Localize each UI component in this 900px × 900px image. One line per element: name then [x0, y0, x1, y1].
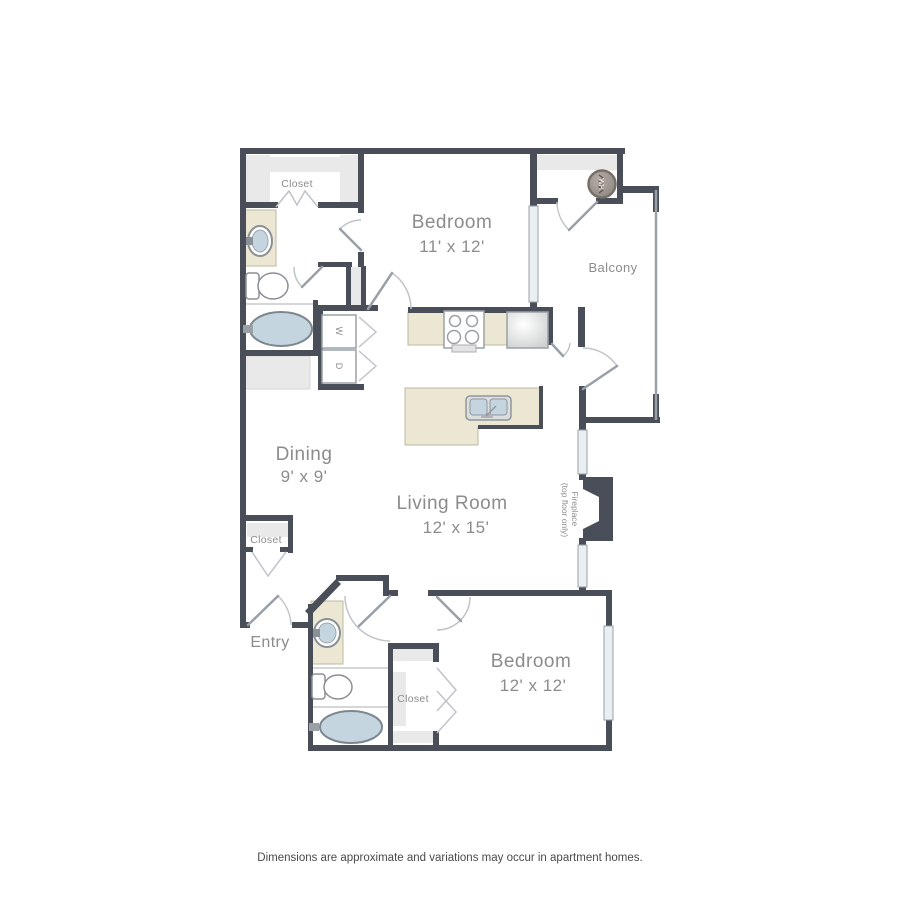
tub-faucet-icon	[309, 723, 319, 731]
closet3-bifold-door-a	[437, 668, 456, 711]
bedroom1-label: Bedroom	[412, 212, 493, 233]
closet-middle-label: Closet	[250, 534, 282, 546]
floorplan-drawing: Bedroom 11' x 12' Bedroom 12' x 12' Livi…	[0, 0, 900, 900]
bath1-door-leaf	[302, 267, 322, 287]
closet1-bifold-door	[276, 191, 318, 207]
bedroom1-door-arc	[340, 220, 361, 229]
closet3-bifold-door-b	[437, 691, 456, 733]
hall-door-arc	[392, 273, 411, 309]
bath1-door-arc	[294, 267, 302, 287]
pantry-door-arc	[563, 343, 570, 356]
wh-closet-door-leaf	[569, 202, 597, 230]
bedroom1-dims: 11' x 12'	[419, 237, 485, 256]
entry-label: Entry	[250, 634, 289, 651]
floorplan-page: Bedroom 11' x 12' Bedroom 12' x 12' Livi…	[0, 0, 900, 900]
hall-door-leaf	[368, 273, 392, 309]
faucet-icon	[246, 237, 253, 245]
bath2-door-leaf	[359, 596, 390, 626]
tub-faucet-icon	[243, 325, 253, 333]
water-heater-label: WH	[597, 178, 604, 190]
window-living1	[578, 430, 587, 474]
fireplace-label: Fireplace (top floor only)	[560, 483, 580, 537]
dining-dims: 9' x 9'	[281, 467, 328, 486]
entry-door-leaf	[248, 596, 278, 625]
bathtub-icon	[250, 312, 312, 346]
bedroom2-label: Bedroom	[491, 651, 572, 672]
toilet-icon	[312, 674, 325, 699]
washer-door-mark	[359, 317, 376, 347]
balcony-door-arc	[583, 348, 617, 366]
dining-label: Dining	[276, 444, 333, 465]
closet2-bifold-door	[252, 552, 286, 576]
window-bedroom1	[529, 206, 538, 302]
balcony-door-leaf	[583, 366, 617, 389]
bathtub-icon	[320, 711, 382, 743]
dryer-label: D	[334, 363, 344, 370]
living-room-label: Living Room	[396, 493, 507, 514]
entry-door-arc	[278, 596, 291, 625]
pantry-door-leaf	[552, 344, 563, 356]
bedroom2-door-leaf	[437, 597, 461, 621]
bedroom1-door-leaf	[340, 229, 361, 250]
disclaimer-text: Dimensions are approximate and variation…	[257, 852, 642, 864]
fridge-icon	[507, 312, 548, 348]
dryer-door-mark	[359, 351, 376, 381]
bedroom2-dims: 12' x 12'	[500, 676, 567, 695]
closet-bottom-label: Closet	[397, 693, 429, 705]
windows	[529, 206, 613, 720]
balcony-label: Balcony	[588, 260, 637, 275]
faucet-icon	[313, 629, 320, 637]
living-room-dims: 12' x 15'	[423, 518, 490, 537]
closet-top-label: Closet	[281, 178, 313, 190]
toilet-icon	[246, 273, 259, 299]
window-living2	[578, 545, 587, 587]
fireplace-body	[583, 477, 613, 541]
washer-label: W	[334, 327, 344, 336]
wh-closet-door-arc	[557, 202, 569, 230]
window-bedroom2	[604, 626, 613, 720]
